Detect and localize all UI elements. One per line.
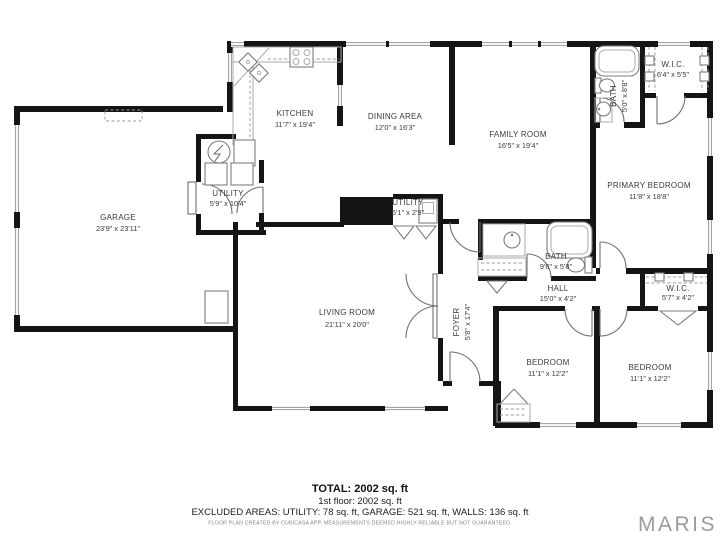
garage-dims: 23'9" x 23'11" [96,224,140,233]
window-garage-left-2 [14,228,20,315]
bedroom-right-door [600,309,627,336]
living-room-label: LIVING ROOM [319,308,375,317]
wic-right-dims: 5'7" x 4'2" [662,293,695,302]
foyer-label: FOYER [452,308,461,337]
washer [205,163,227,185]
window-kitchen-top [231,41,244,47]
hall-closet-bifold [487,281,507,293]
primary-bedroom-dims: 11'8" x 18'8" [629,192,669,201]
hall-dims: 15'0" x 4'2" [540,294,577,303]
wic-right-label: W.I.C. [666,284,689,293]
window-dining-top [346,41,430,47]
utility-small-label: UTILITY [392,198,424,207]
utility-small-bifold-left [394,226,414,239]
bath-top-tub [595,46,639,76]
bedroom-left-closet [497,389,530,422]
utility-label: UTILITY [212,189,244,198]
bedroom-right-dims: 11'1" x 12'2" [630,374,670,383]
kitchen-label: KITCHEN [277,109,314,118]
refrigerator [234,140,255,166]
first-floor-text: 1st floor: 2002 sq. ft [318,496,402,507]
window-bedroom-right-bottom [637,422,681,428]
garage-utility-door [188,182,232,214]
total-area-text: TOTAL: 2002 sq. ft [312,483,409,495]
living-french-doors [406,274,438,338]
bath-mid-label: BATH [545,252,567,261]
water-heater [205,291,228,323]
window-kitchen-passthrough [337,85,343,106]
bedroom-right-label: BEDROOM [628,363,671,372]
maris-logo: MARIS [638,513,717,536]
bath-mid-vanity [483,224,525,256]
family-room-dims: 16'5" x 19'4" [498,141,539,150]
foyer-dims: 5'8" x 17'4" [463,303,472,340]
window-garage-left-1 [14,125,20,212]
wic-top-door [657,96,685,124]
dining-dims: 12'0" x 16'3" [375,123,416,132]
wic-top-dims: 6'4" x 5'5" [657,70,690,79]
living-room-dims: 21'11" x 20'0" [325,320,369,329]
bedroom-left-door [565,309,592,336]
excluded-areas-text: EXCLUDED AREAS: UTILITY: 78 sq. ft, GARA… [191,507,528,518]
window-wic-top [658,41,690,47]
utility-small-dims: 5'1" x 2'9" [392,208,425,217]
wic-right-closet-rails [646,273,707,283]
floorplan-canvas: KITCHEN 11'7" x 19'4" DINING AREA 12'0" … [0,0,720,540]
family-room-label: FAMILY ROOM [489,130,547,139]
hall-label: HALL [547,284,568,293]
window-bedroom-right-side [707,352,713,390]
dryer [231,163,253,185]
utility-dims: 5'9" x 10'4" [210,199,247,208]
bedroom-left-label: BEDROOM [526,358,569,367]
bath-mid-dims: 9'6" x 5'8" [540,262,573,271]
window-family-top [482,41,567,47]
utility-small-bifold-right [416,226,436,239]
wic-top-closet-rails [645,47,709,91]
window-kitchen-left [227,53,233,82]
electrical-panel-icon [208,141,230,163]
window-living-bottom-2 [385,406,425,411]
window-bedroom-left-bottom [540,422,576,428]
dining-label: DINING AREA [368,112,423,121]
bedroom-left-dims: 11'1" x 12'2" [528,369,568,378]
wic-top-label: W.I.C. [661,60,684,69]
window-living-bottom-1 [272,406,310,411]
floorplan-page: KITCHEN 11'7" x 19'4" DINING AREA 12'0" … [0,0,720,540]
linen-closet [478,258,526,276]
window-primary-right-1 [707,118,713,156]
foyer-family-door [450,222,480,252]
kitchen-dims: 11'7" x 19'4" [275,120,315,129]
disclaimer-text: FLOOR PLAN CREATED BY CUBICASA APP. MEAS… [208,521,511,527]
bath-top-label: BATH [609,85,618,107]
primary-bedroom-label: PRIMARY BEDROOM [607,181,691,190]
primary-bedroom-door [600,242,626,268]
stove-icon [290,47,313,67]
footer: TOTAL: 2002 sq. ft 1st floor: 2002 sq. f… [191,483,528,527]
front-door [450,352,480,382]
wic-right-bifold [660,311,696,325]
bath-top-dims: 5'0" x 8'8" [620,79,629,112]
garage-label: GARAGE [100,213,136,222]
window-primary-right-2 [707,220,713,254]
